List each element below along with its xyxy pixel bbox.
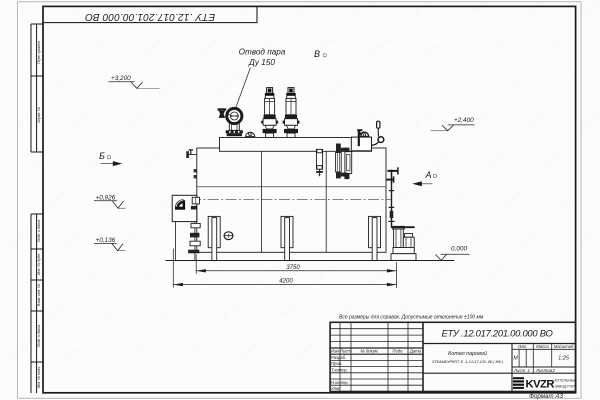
svg-text:Формат А3: Формат А3 [529,393,563,400]
svg-text:KVZR.RU: KVZR.RU [463,0,492,22]
svg-text:Лит.: Лит. [517,344,528,349]
svg-text:KVZR.RU: KVZR.RU [367,35,396,60]
svg-text:+0,926: +0,926 [96,194,116,201]
svg-text:KVZR.RU: KVZR.RU [139,35,168,60]
svg-text:KVZR.RU: KVZR.RU [7,225,36,250]
svg-text:KVZR.RU: KVZR.RU [235,339,264,364]
svg-text:KVZR.RU: KVZR.RU [82,35,111,60]
svg-text:KVZR.RU: KVZR.RU [178,111,207,136]
svg-text:КОТЕЛЬНЫЙ: КОТЕЛЬНЫЙ [555,379,578,383]
svg-text:KVZR.RU: KVZR.RU [499,187,528,212]
svg-text:KVZR.RU: KVZR.RU [196,35,225,60]
svg-text:KVZR.RU: KVZR.RU [499,73,528,98]
svg-text:KVZR.RU: KVZR.RU [100,301,129,326]
svg-text:1: 1 [528,368,531,373]
svg-text:Ду 150: Ду 150 [248,58,275,67]
svg-text:3750: 3750 [286,264,300,271]
svg-text:Масштаб: Масштаб [554,344,574,349]
svg-text:KVZR.RU: KVZR.RU [481,35,510,60]
svg-text:KVZR.RU: KVZR.RU [520,339,549,364]
svg-text:KVZR.RU: KVZR.RU [385,73,414,98]
svg-text:Лист: Лист [513,368,526,373]
svg-text:KVZR.RU: KVZR.RU [121,339,150,364]
svg-text:В: В [314,49,320,59]
svg-text:Масса: Масса [536,344,549,349]
svg-text:+3,200: +3,200 [111,75,131,82]
svg-text:KVZR.RU: KVZR.RU [64,225,93,250]
svg-text:KVZR.RU: KVZR.RU [157,73,186,98]
svg-text:Листов: Листов [535,368,553,373]
svg-text:STEAMEXPERT- Е -1,2-0,17-130-: STEAMEXPERT- Е -1,2-0,17-130- КБ ( ЖК ) [432,360,504,364]
svg-text:Подп.: Подп. [392,349,403,354]
svg-text:KVZR.RU: KVZR.RU [406,0,435,22]
svg-text:Изм: Изм [331,349,339,354]
svg-text:Дата: Дата [409,349,422,354]
svg-text:KVZR.RU: KVZR.RU [406,111,435,136]
svg-text:KVZR.RU: KVZR.RU [253,263,282,288]
svg-text:+2,400: +2,400 [454,117,474,124]
svg-text:KVZR.RU: KVZR.RU [7,0,36,22]
svg-text:KVZR.RU: KVZR.RU [121,111,150,136]
svg-text:KVZR.RU: KVZR.RU [43,187,72,212]
svg-text:KVZR.RU: KVZR.RU [538,35,567,60]
svg-text:KVZR.RU: KVZR.RU [121,225,150,250]
svg-text:KVZR.RU: KVZR.RU [424,263,453,288]
svg-text:KVZR.RU: KVZR.RU [64,111,93,136]
svg-text:Справ. №: Справ. № [37,107,41,123]
svg-text:Перв. примен.: Перв. примен. [37,40,41,64]
svg-text:KVZR.RU: KVZR.RU [64,339,93,364]
svg-text:А: А [425,170,432,180]
svg-text:2: 2 [552,368,556,373]
svg-text:Пров.: Пров. [331,361,342,366]
svg-text:KVZR.RU: KVZR.RU [442,73,471,98]
svg-text:Взам. инв. №: Взам. инв. № [37,284,41,306]
svg-text:KVZR.RU: KVZR.RU [349,0,378,22]
svg-text:4200: 4200 [279,278,293,285]
svg-text:KVZR.RU: KVZR.RU [520,111,549,136]
svg-text:Б: Б [99,151,105,161]
svg-text:KVZR.RU: KVZR.RU [481,263,510,288]
svg-text:Утв.: Утв. [331,386,341,391]
svg-text:KVZR.RU: KVZR.RU [7,111,36,136]
svg-text:KVZR.RU: KVZR.RU [139,149,168,174]
svg-text:KVZR.RU: KVZR.RU [595,149,600,174]
svg-text:Отвод пара: Отвод пара [239,48,286,57]
svg-text:KVZR.RU: KVZR.RU [214,301,243,326]
svg-text:М: М [513,356,518,362]
svg-text:KVZR.RU: KVZR.RU [442,187,471,212]
svg-text:1:25: 1:25 [558,356,570,362]
svg-text:Котел паровой: Котел паровой [448,350,487,357]
svg-text:KVZR.RU: KVZR.RU [7,339,36,364]
svg-text:KVZR.RU: KVZR.RU [328,73,357,98]
svg-text:KVZR.RU: KVZR.RU [271,301,300,326]
svg-text:KVZR.RU: KVZR.RU [310,263,339,288]
svg-text:Лист: Лист [339,349,351,354]
svg-text:ЗАВОД РЭП: ЗАВОД РЭП [555,384,576,388]
svg-text:Подп. и дата: Подп. и дата [37,325,41,348]
svg-text:Разраб.: Разраб. [331,355,346,360]
svg-text:KVZR.RU: KVZR.RU [82,149,111,174]
svg-text:KVZR.RU: KVZR.RU [577,339,600,364]
svg-text:KVZR.RU: KVZR.RU [196,263,225,288]
svg-text:№ докум.: № докум. [360,349,378,354]
svg-text:Все размеры для справок. Допус: Все размеры для справок. Допустимые откл… [339,315,484,321]
svg-text:KVZR.RU: KVZR.RU [214,73,243,98]
svg-text:ЕТУ .12.017.201.00.000 ВО: ЕТУ .12.017.201.00.000 ВО [441,328,553,339]
svg-text:KVZR.RU: KVZR.RU [43,73,72,98]
svg-text:KVZR.RU: KVZR.RU [271,73,300,98]
svg-text:KVZR.RU: KVZR.RU [139,263,168,288]
svg-text:KVZR.RU: KVZR.RU [577,0,600,22]
svg-text:KVZR.RU: KVZR.RU [595,35,600,60]
svg-text:KVZR: KVZR [526,379,555,391]
svg-text:KVZR.RU: KVZR.RU [235,0,264,22]
svg-text:KVZR.RU: KVZR.RU [157,301,186,326]
svg-text:KVZR.RU: KVZR.RU [481,149,510,174]
svg-text:KVZR.RU: KVZR.RU [292,0,321,22]
svg-text:KVZR.RU: KVZR.RU [577,111,600,136]
svg-text:KVZR.RU: KVZR.RU [538,149,567,174]
svg-text:Н.контр.: Н.контр. [331,380,349,385]
svg-text:KVZR.RU: KVZR.RU [520,0,549,22]
svg-text:KVZR.RU: KVZR.RU [178,339,207,364]
svg-text:KVZR.RU: KVZR.RU [424,35,453,60]
svg-text:KVZR.RU: KVZR.RU [595,263,600,288]
svg-text:+0,136: +0,136 [96,237,116,244]
svg-text:Инв. № подл.: Инв. № подл. [37,366,41,388]
svg-text:Т.контр.: Т.контр. [331,367,348,372]
svg-text:KVZR.RU: KVZR.RU [577,225,600,250]
svg-text:Подп. и дата: Подп. и дата [37,220,41,243]
svg-text:ЕТУ .12.017.201.00.000 ВО: ЕТУ .12.017.201.00.000 ВО [85,11,215,22]
svg-text:KVZR.RU: KVZR.RU [43,301,72,326]
svg-text:Инв. № дубл.: Инв. № дубл. [37,253,41,275]
svg-text:KVZR.RU: KVZR.RU [463,225,492,250]
svg-text:KVZR.RU: KVZR.RU [520,225,549,250]
svg-text:KVZR.RU: KVZR.RU [292,339,321,364]
svg-text:KVZR.RU: KVZR.RU [538,263,567,288]
svg-text:KVZR.RU: KVZR.RU [82,263,111,288]
svg-text:0,000: 0,000 [451,245,467,252]
